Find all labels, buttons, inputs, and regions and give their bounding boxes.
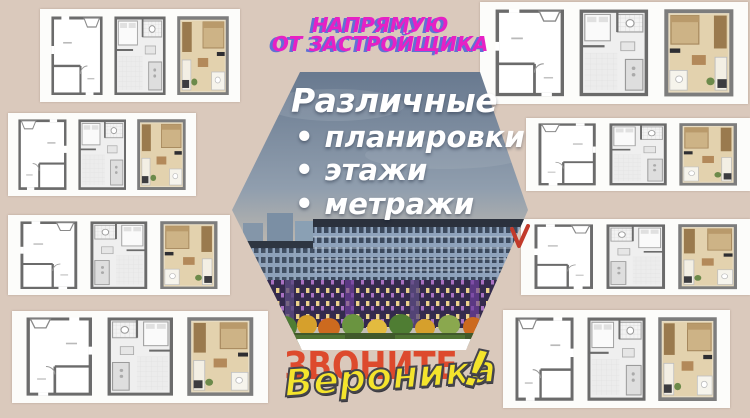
floor-plan-card-top-left [40,9,240,102]
render-floorplan [679,123,737,186]
render-floorplan [160,221,218,290]
render-floorplan [664,9,734,97]
floor-plan-card-middle-left-1 [8,113,196,196]
floor-plan-card-middle-right-1 [526,118,750,191]
promo-headline: НАПРЯМУЮ ОТ ЗАСТРОЙЩИКА [255,16,505,54]
furnished-floorplan [587,317,646,401]
outline-floorplan [534,224,594,289]
furnished-floorplan [107,317,174,396]
render-floorplan [658,317,717,401]
floor-plan-card-middle-right-2 [521,219,750,295]
render-floorplan [678,224,738,289]
furnished-floorplan [114,16,166,96]
outline-floorplan [26,317,93,396]
floor-plan-card-middle-left-2 [8,215,230,295]
promo-headline-line2: ОТ ЗАСТРОЙЩИКА [255,35,505,54]
furnished-floorplan [579,9,649,97]
promo-poster: Различные •планировки •этажи •метражи НА… [0,0,750,418]
furnished-floorplan [78,119,127,190]
floor-plan-card-bottom-right [503,310,730,408]
outline-floorplan [18,119,67,190]
furnished-floorplan [90,221,148,290]
furnished-floorplan [606,224,666,289]
render-floorplan [177,16,229,96]
hexagon-banner [225,65,535,355]
render-floorplan [137,119,186,190]
outline-floorplan [20,221,78,290]
outline-floorplan [51,16,103,96]
outline-floorplan [538,123,596,186]
red-check-icon [509,224,531,250]
furnished-floorplan [609,123,667,186]
